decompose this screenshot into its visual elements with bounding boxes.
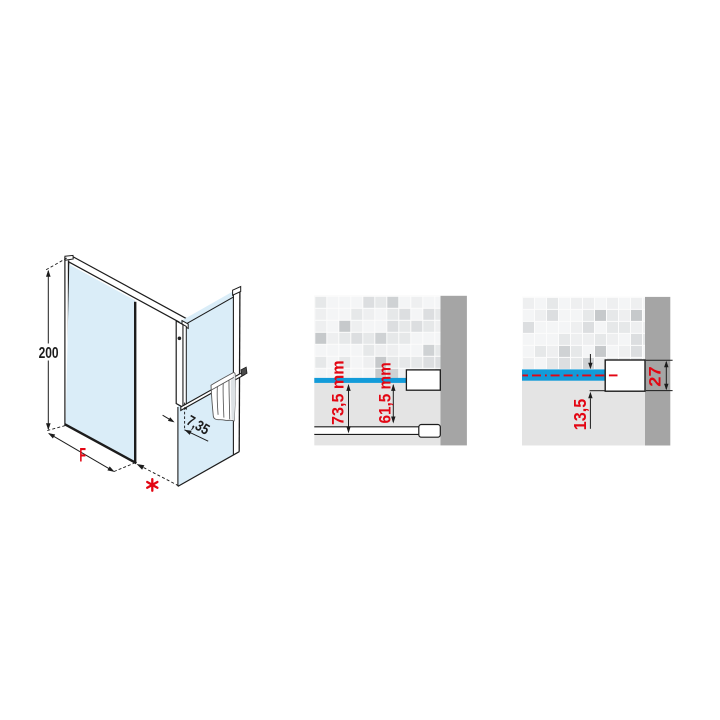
svg-text:27: 27 xyxy=(645,366,664,387)
svg-text:F: F xyxy=(79,445,86,466)
svg-text:200: 200 xyxy=(39,343,59,361)
svg-text:73,5 mm: 73,5 mm xyxy=(328,360,347,425)
svg-text:13,5: 13,5 xyxy=(570,398,590,430)
svg-text:61,5 mm: 61,5 mm xyxy=(376,362,395,423)
